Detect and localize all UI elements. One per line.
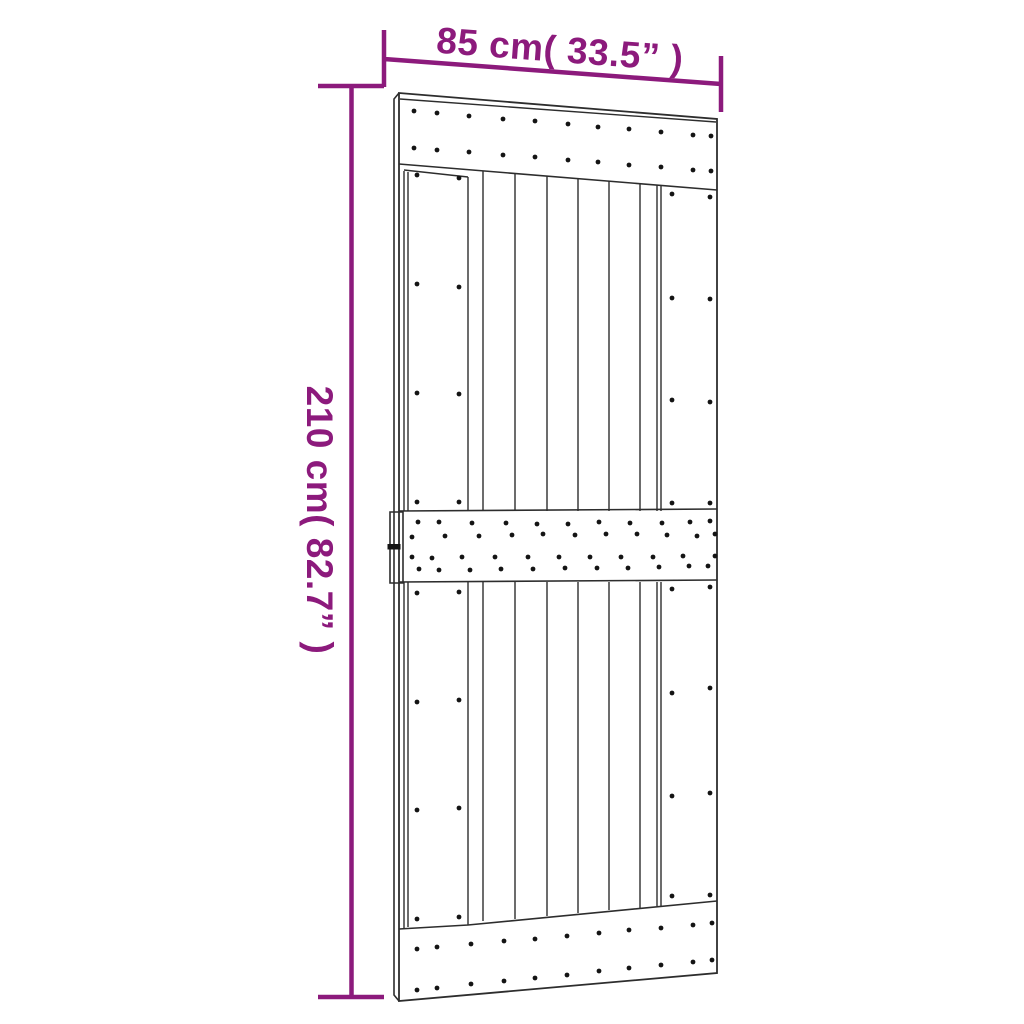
- screw-dot: [695, 534, 700, 539]
- screw-dot: [691, 133, 696, 138]
- screw-dot: [457, 806, 462, 811]
- top-rail-bottom-edge: [399, 164, 717, 190]
- screw-dot: [533, 155, 538, 160]
- screw-dot: [435, 986, 440, 991]
- screw-dot: [659, 963, 664, 968]
- screw-dot: [713, 554, 718, 559]
- screw-dot: [659, 926, 664, 931]
- screw-dot: [415, 700, 420, 705]
- screw-dot: [708, 501, 713, 506]
- screw-dot: [437, 520, 442, 525]
- screw-dot: [596, 125, 601, 130]
- screw-dot: [708, 686, 713, 691]
- screw-dot: [670, 296, 675, 301]
- bottom-rail-top-edge: [399, 901, 717, 929]
- screw-dot: [687, 564, 692, 569]
- screw-dot: [535, 522, 540, 527]
- screw-dot: [596, 160, 601, 165]
- screw-dot: [412, 146, 417, 151]
- screw-dot: [710, 921, 715, 926]
- screw-dot: [410, 535, 415, 540]
- screw-dot: [708, 791, 713, 796]
- screw-dot: [635, 532, 640, 537]
- screw-dot: [706, 564, 711, 569]
- screw-dot: [469, 942, 474, 947]
- height-dimension-label: 210 cm( 82.7” ): [298, 386, 340, 655]
- screw-dot: [533, 119, 538, 124]
- screw-dot: [457, 500, 462, 505]
- screw-dot: [416, 520, 421, 525]
- screw-dot: [499, 567, 504, 572]
- screw-dot: [659, 130, 664, 135]
- screw-dot: [415, 988, 420, 993]
- screw-dot: [493, 555, 498, 560]
- screw-dot: [691, 960, 696, 965]
- screw-dot: [460, 555, 465, 560]
- screw-dot: [443, 534, 448, 539]
- screw-dot: [415, 282, 420, 287]
- screw-dot: [457, 285, 462, 290]
- diagram-svg: [0, 0, 1024, 1024]
- screw-dot: [563, 566, 568, 571]
- screw-dot: [415, 808, 420, 813]
- screw-dot: [457, 590, 462, 595]
- screw-dot: [628, 521, 633, 526]
- screw-dot: [502, 939, 507, 944]
- screw-dot: [708, 585, 713, 590]
- screw-dot: [417, 567, 422, 572]
- screw-dot: [595, 566, 600, 571]
- screw-dot: [670, 794, 675, 799]
- screw-dot: [467, 114, 472, 119]
- screw-dot: [457, 915, 462, 920]
- screw-dot: [531, 567, 536, 572]
- screw-dot: [415, 917, 420, 922]
- product-dimension-diagram: 85 cm( 33.5” ) 210 cm( 82.7” ): [0, 0, 1024, 1024]
- door-front-face: [399, 93, 717, 1001]
- screw-dot: [502, 979, 507, 984]
- screw-dot: [477, 534, 482, 539]
- screw-dot: [681, 554, 686, 559]
- screw-dot: [670, 398, 675, 403]
- screw-dot: [627, 966, 632, 971]
- screw-dot: [565, 934, 570, 939]
- screw-dot: [501, 153, 506, 158]
- screw-dot: [708, 195, 713, 200]
- screw-dot: [533, 976, 538, 981]
- screw-dot: [709, 134, 714, 139]
- screw-dot: [469, 982, 474, 987]
- screw-dot: [657, 565, 662, 570]
- screw-dot: [665, 533, 670, 538]
- screw-dot: [670, 501, 675, 506]
- screw-dot: [670, 894, 675, 899]
- screw-dot: [713, 532, 718, 537]
- screw-dot: [670, 691, 675, 696]
- plank-edges-upper: [404, 171, 661, 511]
- screw-dot: [688, 520, 693, 525]
- screw-dot: [415, 947, 420, 952]
- screw-dot: [627, 928, 632, 933]
- screw-dot: [691, 168, 696, 173]
- screw-dots: [410, 109, 718, 993]
- screw-dot: [566, 522, 571, 527]
- screw-dot: [435, 111, 440, 116]
- door-handle: [388, 512, 404, 583]
- screw-dot: [566, 158, 571, 163]
- screw-dot: [626, 566, 631, 571]
- screw-dot: [412, 109, 417, 114]
- screw-dot: [437, 568, 442, 573]
- screw-dot: [435, 148, 440, 153]
- screw-dot: [410, 555, 415, 560]
- door-top-edge-inner: [400, 99, 716, 122]
- screw-dot: [565, 973, 570, 978]
- screw-dot: [415, 173, 420, 178]
- screw-dot: [691, 923, 696, 928]
- screw-dot: [651, 555, 656, 560]
- screw-dot: [573, 533, 578, 538]
- screw-dot: [457, 698, 462, 703]
- screw-dot: [566, 122, 571, 127]
- screw-dot: [501, 117, 506, 122]
- screw-dot: [457, 392, 462, 397]
- screw-dot: [467, 150, 472, 155]
- screw-dot: [659, 165, 664, 170]
- screw-dot: [457, 176, 462, 181]
- screw-dot: [415, 591, 420, 596]
- screw-dot: [415, 391, 420, 396]
- screw-dot: [709, 169, 714, 174]
- screw-dot: [510, 533, 515, 538]
- screw-dot: [627, 127, 632, 132]
- screw-dot: [708, 893, 713, 898]
- screw-dot: [597, 969, 602, 974]
- screw-dot: [588, 555, 593, 560]
- screw-dot: [557, 555, 562, 560]
- door-drawing: [388, 93, 718, 1001]
- screw-dot: [415, 500, 420, 505]
- screw-dot: [660, 521, 665, 526]
- screw-dot: [533, 937, 538, 942]
- screw-dot: [670, 192, 675, 197]
- screw-dot: [526, 555, 531, 560]
- screw-dot: [504, 521, 509, 526]
- screw-dot: [708, 297, 713, 302]
- screw-dot: [619, 555, 624, 560]
- screw-dot: [430, 556, 435, 561]
- door-handle-notch: [388, 544, 401, 550]
- screw-dot: [710, 958, 715, 963]
- screw-dot: [541, 532, 546, 537]
- screw-dot: [670, 587, 675, 592]
- middle-rail-edges: [399, 509, 717, 582]
- screw-dot: [627, 163, 632, 168]
- plank-edges-lower: [404, 582, 661, 928]
- screw-dot: [468, 568, 473, 573]
- screw-dot: [597, 520, 602, 525]
- screw-dot: [435, 945, 440, 950]
- screw-dot: [708, 519, 713, 524]
- screw-dot: [470, 521, 475, 526]
- screw-dot: [604, 532, 609, 537]
- screw-dot: [597, 931, 602, 936]
- screw-dot: [708, 400, 713, 405]
